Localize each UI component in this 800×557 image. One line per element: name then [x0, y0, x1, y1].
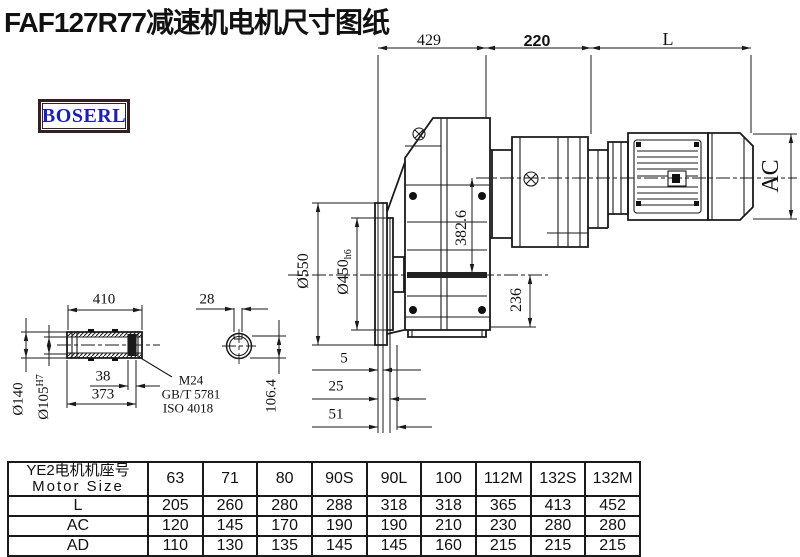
dim-label-106: 106.4	[265, 379, 280, 413]
motor-frame-bolt	[694, 142, 699, 147]
table-cell: 205	[148, 496, 203, 516]
extension-lines	[21, 55, 797, 433]
dim-label-382: 382.6	[454, 210, 470, 246]
table-cell: 145	[367, 536, 422, 556]
dimension-lines	[24, 46, 793, 429]
table-cell: 280	[585, 516, 640, 536]
dim-label-phi450h6: Ø450h6	[336, 249, 354, 295]
column-header: 90L	[367, 462, 422, 496]
flange-bolt	[478, 306, 486, 314]
dim-label-AC: AC	[759, 159, 783, 192]
table-row: AC120145170190190210230280280	[8, 516, 640, 536]
motor-size-header: YE2电机机座号 Motor Size	[8, 462, 148, 496]
table-cell: 260	[203, 496, 258, 516]
table-cell: 110	[148, 536, 203, 556]
fan-cowl	[708, 133, 753, 220]
column-header: 80	[257, 462, 312, 496]
row-label: AC	[8, 516, 148, 536]
thread-spec-gbt: GB/T 5781	[162, 388, 221, 401]
input-adapter	[490, 137, 628, 247]
row-label: L	[8, 496, 148, 516]
motor-size-header-cn: YE2电机机座号	[9, 463, 147, 479]
table-cell: 230	[476, 516, 531, 536]
terminal-box-inner	[672, 174, 680, 183]
shaft-nub	[88, 358, 94, 361]
table-cell: 288	[312, 496, 367, 516]
dim-label-28: 28	[200, 293, 215, 308]
table-cell: 160	[421, 536, 476, 556]
dim-label-25: 25	[329, 380, 344, 395]
table-cell: 452	[585, 496, 640, 516]
motor-size-table: YE2电机机座号 Motor Size 63718090S90L100112M1…	[7, 461, 641, 557]
table-cell: 215	[531, 536, 586, 556]
table-cell: 280	[257, 496, 312, 516]
dim-label-236: 236	[509, 288, 525, 312]
table-cell: 215	[585, 536, 640, 556]
table-cell: 210	[421, 516, 476, 536]
table-row: AD110130135145145160215215215	[8, 536, 640, 556]
table-cell: 318	[367, 496, 422, 516]
dim-label-220: 220	[524, 34, 551, 50]
thread-spec-m24: M24	[179, 374, 204, 387]
flange-bolt	[478, 192, 486, 200]
shaft-nub	[88, 329, 94, 332]
table-cell: 215	[476, 536, 531, 556]
dim-label-phi140: Ø140	[12, 382, 27, 415]
column-header: 132S	[531, 462, 586, 496]
thread-spec-iso: ISO 4018	[163, 402, 213, 415]
table-cell: 365	[476, 496, 531, 516]
dim-label-phi105H7: Ø105H7	[36, 374, 52, 420]
table-cell: 170	[257, 516, 312, 536]
shaft-retainer-block	[128, 334, 136, 356]
column-header: 63	[148, 462, 203, 496]
dim-label-L: L	[663, 30, 674, 48]
table-cell: 318	[421, 496, 476, 516]
flange-bolt	[409, 192, 417, 200]
table-cell: 190	[367, 516, 422, 536]
table-row: L205260280288318318365413452	[8, 496, 640, 516]
column-header: 90S	[312, 462, 367, 496]
table-cell: 120	[148, 516, 203, 536]
table-header-row: YE2电机机座号 Motor Size 63718090S90L100112M1…	[8, 462, 640, 496]
motor-frame-bolt	[636, 201, 641, 206]
table-cell: 190	[312, 516, 367, 536]
dim-label-5: 5	[340, 352, 348, 367]
table-cell: 145	[312, 536, 367, 556]
motor-size-header-en: Motor Size	[9, 479, 147, 495]
dim-label-410: 410	[93, 293, 116, 308]
dim-label-38: 38	[96, 370, 111, 385]
dim-label-429: 429	[417, 33, 441, 49]
column-header: 112M	[476, 462, 531, 496]
adapter-bolt-cross-icon	[526, 174, 536, 184]
dim-label-373: 373	[92, 388, 115, 403]
table-cell: 145	[203, 516, 258, 536]
dim-label-phi550: Ø550	[296, 253, 312, 289]
column-header: 71	[203, 462, 258, 496]
table-cell: 135	[257, 536, 312, 556]
shaft-nub	[112, 329, 118, 332]
column-header: 132M	[585, 462, 640, 496]
drawing-sheet: FAF127R77减速机电机尺寸图纸 BOSERL	[0, 0, 800, 557]
motor-frame-bolt	[636, 142, 641, 147]
column-header: 100	[421, 462, 476, 496]
table-cell: 413	[531, 496, 586, 516]
output-shaft-section	[407, 272, 487, 278]
motor-size-table-wrap: YE2电机机座号 Motor Size 63718090S90L100112M1…	[7, 461, 641, 557]
table-cell: 130	[203, 536, 258, 556]
row-label: AD	[8, 536, 148, 556]
dim-label-51: 51	[329, 408, 344, 423]
shaft-nub	[112, 358, 118, 361]
motor-frame-bolt	[694, 201, 699, 206]
table-cell: 280	[531, 516, 586, 536]
flange-bolt	[409, 306, 417, 314]
